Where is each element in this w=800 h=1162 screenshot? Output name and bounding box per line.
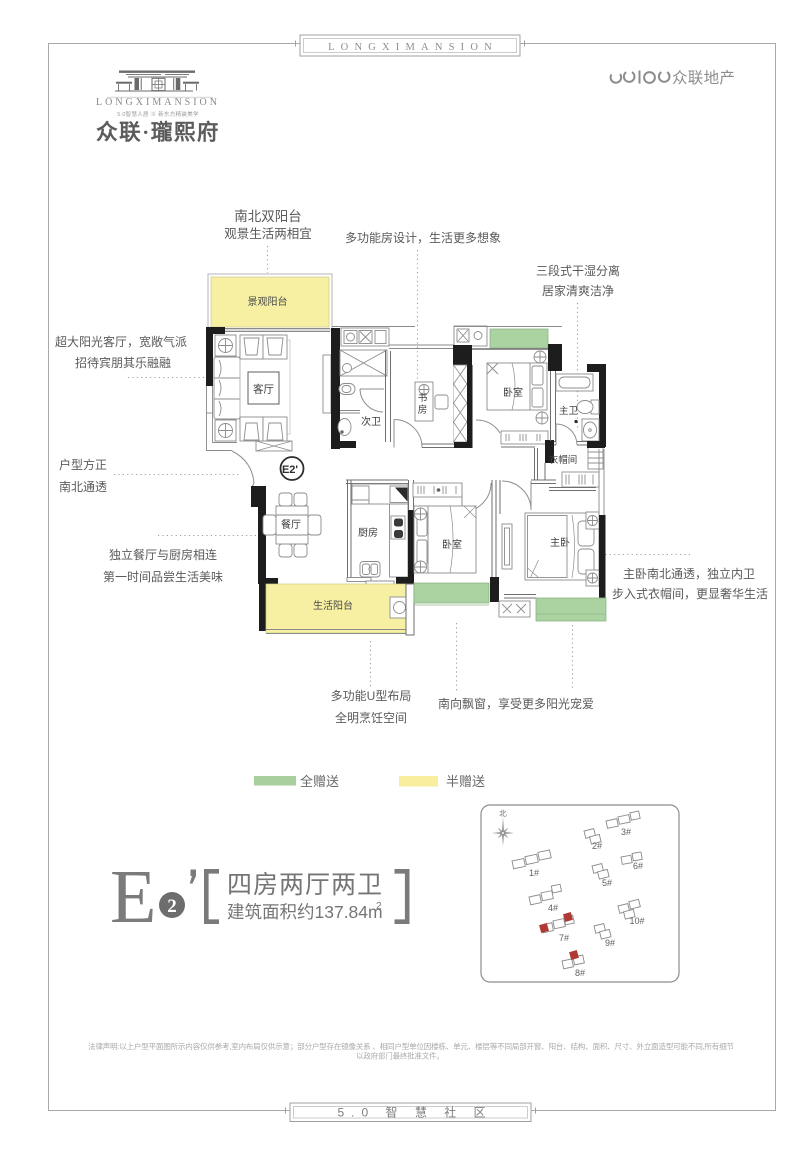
- svg-text:半赠送: 半赠送: [446, 774, 485, 789]
- svg-text:超大阳光客厅，宽敞气派: 超大阳光客厅，宽敞气派: [55, 334, 187, 349]
- svg-text:客厅: 客厅: [253, 383, 274, 396]
- svg-text:LONGXIMANSION: LONGXIMANSION: [328, 42, 498, 53]
- svg-text:主卫: 主卫: [559, 405, 579, 417]
- svg-text:书: 书: [418, 393, 428, 404]
- svg-text:3#: 3#: [621, 827, 631, 837]
- svg-text:南向飘窗，享受更多阳光宠爱: 南向飘窗，享受更多阳光宠爱: [438, 696, 594, 711]
- svg-text:多功能房设计，生活更多想象: 多功能房设计，生活更多想象: [345, 230, 501, 245]
- svg-text:6#: 6#: [633, 861, 643, 871]
- svg-text:独立餐厅与厨房相连: 独立餐厅与厨房相连: [109, 547, 217, 562]
- svg-text:E: E: [110, 855, 156, 939]
- svg-text:房: 房: [418, 404, 428, 416]
- svg-text:全赠送: 全赠送: [300, 774, 339, 789]
- svg-text:9#: 9#: [605, 938, 615, 948]
- svg-text:5.0 智 慧 社 区: 5.0 智 慧 社 区: [337, 1105, 492, 1120]
- svg-text:2: 2: [376, 901, 382, 912]
- svg-text:北: 北: [499, 809, 507, 818]
- svg-text:主卧南北通透，独立内卫: 主卧南北通透，独立内卫: [623, 566, 755, 581]
- svg-text:众联地产: 众联地产: [672, 69, 735, 87]
- svg-text:2#: 2#: [592, 841, 602, 851]
- svg-text:5.0智慧人居 ※ 新东方精装美学: 5.0智慧人居 ※ 新东方精装美学: [117, 110, 199, 118]
- svg-text:南北双阳台: 南北双阳台: [234, 209, 302, 224]
- svg-text:衣帽间: 衣帽间: [549, 454, 578, 466]
- svg-text:四房两厅两卫: 四房两厅两卫: [227, 871, 383, 899]
- svg-text:第一时间品尝生活美味: 第一时间品尝生活美味: [103, 569, 223, 584]
- svg-text:居家清爽洁净: 居家清爽洁净: [542, 283, 614, 298]
- svg-text:2: 2: [167, 896, 177, 917]
- svg-text:招待宾朋其乐融融: 招待宾朋其乐融融: [75, 355, 171, 370]
- svg-text:步入式衣帽间，更显奢华生活: 步入式衣帽间，更显奢华生活: [612, 586, 768, 601]
- svg-text:三段式干湿分离: 三段式干湿分离: [536, 263, 620, 278]
- svg-text:多功能U型布局: 多功能U型布局: [331, 689, 412, 703]
- svg-text:8#: 8#: [575, 968, 585, 978]
- svg-text:全明烹饪空间: 全明烹饪空间: [335, 710, 407, 725]
- svg-text:南北通透: 南北通透: [59, 479, 107, 494]
- svg-text:厨房: 厨房: [358, 526, 378, 539]
- svg-text:观景生活两相宜: 观景生活两相宜: [224, 226, 312, 241]
- svg-text:次卫: 次卫: [361, 415, 381, 428]
- svg-text:景观阳台: 景观阳台: [248, 295, 288, 308]
- svg-text:法律声明:以上户型平面图所示内容仅供参考,室内布局仅供示意；: 法律声明:以上户型平面图所示内容仅供参考,室内布局仅供示意；部分户型存在镜像关系…: [88, 1041, 734, 1051]
- svg-text:建筑面积约137.84m: 建筑面积约137.84m: [227, 902, 383, 922]
- svg-text:1#: 1#: [529, 868, 539, 878]
- svg-text:LONGXIMANSION: LONGXIMANSION: [96, 97, 220, 108]
- svg-text:主卧: 主卧: [550, 536, 570, 549]
- svg-text:卧室: 卧室: [442, 538, 462, 551]
- svg-text:E2': E2': [282, 464, 298, 476]
- svg-text:10#: 10#: [629, 916, 644, 926]
- svg-text:卧室: 卧室: [503, 386, 523, 399]
- svg-text:4#: 4#: [548, 903, 558, 913]
- svg-text:5#: 5#: [602, 878, 612, 888]
- svg-text:生活阳台: 生活阳台: [313, 599, 353, 612]
- svg-text:以政府部门最终批准文件。: 以政府部门最终批准文件。: [356, 1052, 444, 1061]
- svg-text:7#: 7#: [559, 933, 569, 943]
- svg-text:众联·瓏熙府: 众联·瓏熙府: [96, 120, 220, 145]
- svg-text:餐厅: 餐厅: [281, 518, 301, 531]
- svg-text:户型方正: 户型方正: [59, 457, 107, 472]
